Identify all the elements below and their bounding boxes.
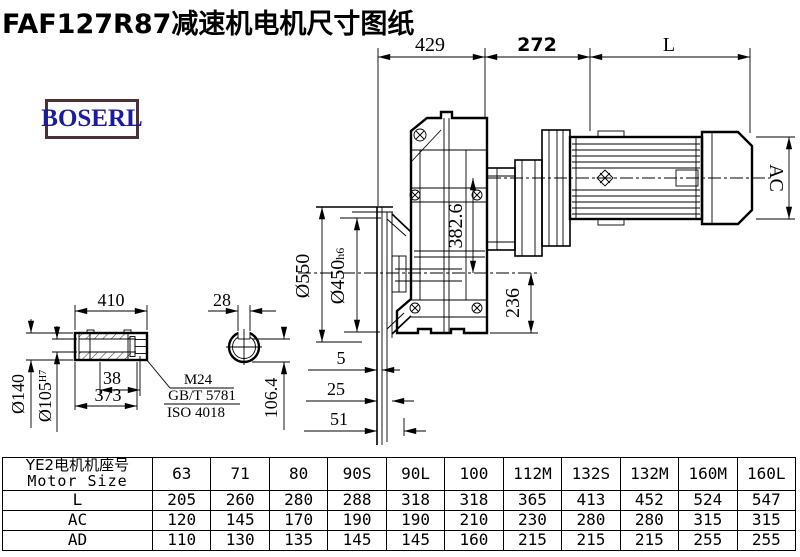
table-corner-cell: YE2电机机座号 Motor Size bbox=[3, 458, 153, 491]
drawing-sheet: FAF127R87减速机电机尺寸图纸 BOSERL 429 272 L bbox=[0, 0, 800, 557]
size-col: 71 bbox=[211, 458, 269, 491]
dim-dia450h6: Ø450h6 bbox=[327, 248, 349, 304]
bolt-icon bbox=[472, 303, 482, 313]
cell: 170 bbox=[269, 510, 327, 530]
dim-AC: AC bbox=[765, 164, 787, 192]
bolt-icon bbox=[414, 129, 426, 141]
bolt-icon bbox=[410, 303, 420, 313]
cell: 210 bbox=[445, 510, 503, 530]
cell: 288 bbox=[328, 490, 386, 510]
size-col: 63 bbox=[153, 458, 211, 491]
size-col: 132S bbox=[562, 458, 620, 491]
cell: 260 bbox=[211, 490, 269, 510]
bolt-icon bbox=[472, 190, 482, 200]
note-m24: M24 bbox=[184, 372, 213, 388]
cell: 190 bbox=[328, 510, 386, 530]
table-row-AC: AC 120 145 170 190 190 210 230 280 280 3… bbox=[3, 510, 796, 530]
dim-dia140: Ø140 bbox=[8, 374, 28, 414]
size-col: 90L bbox=[386, 458, 444, 491]
cell: 215 bbox=[562, 530, 620, 550]
row-label: L bbox=[3, 490, 153, 510]
size-col: 80 bbox=[269, 458, 327, 491]
hollow-shaft-detail: 410 38 373 Ø140 Ø105H7 M24 bbox=[8, 290, 240, 432]
cell: 215 bbox=[620, 530, 678, 550]
dim-382-6: 382.6 bbox=[445, 204, 467, 249]
note-gbt5781: GB/T 5781 bbox=[168, 388, 236, 404]
cell: 190 bbox=[386, 510, 444, 530]
cell: 315 bbox=[737, 510, 795, 530]
cell: 413 bbox=[562, 490, 620, 510]
dim-410: 410 bbox=[98, 290, 125, 310]
cell: 280 bbox=[620, 510, 678, 530]
size-col: 112M bbox=[503, 458, 561, 491]
size-col: 160M bbox=[679, 458, 737, 491]
dim-236: 236 bbox=[502, 288, 524, 318]
dim-272: 272 bbox=[517, 34, 557, 56]
dim-106-4: 106.4 bbox=[261, 378, 281, 419]
dim-5: 5 bbox=[337, 348, 346, 368]
table-row-L: L 205 260 280 288 318 318 365 413 452 52… bbox=[3, 490, 796, 510]
motor-size-label-en: Motor Size bbox=[3, 474, 152, 490]
cell: 280 bbox=[562, 510, 620, 530]
dim-25: 25 bbox=[327, 379, 345, 399]
cell: 160 bbox=[445, 530, 503, 550]
size-col: 100 bbox=[445, 458, 503, 491]
cell: 135 bbox=[269, 530, 327, 550]
cell: 547 bbox=[737, 490, 795, 510]
dim-51: 51 bbox=[330, 409, 348, 429]
cell: 255 bbox=[679, 530, 737, 550]
table-row-AD: AD 110 130 135 145 145 160 215 215 215 2… bbox=[3, 530, 796, 550]
cell: 215 bbox=[503, 530, 561, 550]
centerlines bbox=[298, 178, 770, 273]
cell: 110 bbox=[153, 530, 211, 550]
cell: 145 bbox=[211, 510, 269, 530]
note-iso4018: ISO 4018 bbox=[167, 405, 225, 421]
cell: 280 bbox=[269, 490, 327, 510]
dim-dia550: Ø550 bbox=[292, 254, 314, 298]
dim-429: 429 bbox=[415, 34, 445, 56]
size-col: 90S bbox=[328, 458, 386, 491]
cell: 130 bbox=[211, 530, 269, 550]
cell: 452 bbox=[620, 490, 678, 510]
cell: 120 bbox=[153, 510, 211, 530]
cell: 255 bbox=[737, 530, 795, 550]
size-col: 160L bbox=[737, 458, 795, 491]
row-label: AD bbox=[3, 530, 153, 550]
cell: 205 bbox=[153, 490, 211, 510]
motor-size-table: YE2电机机座号 Motor Size 63 71 80 90S 90L 100… bbox=[2, 457, 796, 551]
dim-373: 373 bbox=[95, 385, 122, 405]
cell: 365 bbox=[503, 490, 561, 510]
size-col: 132M bbox=[620, 458, 678, 491]
cell: 145 bbox=[386, 530, 444, 550]
dim-dia105: Ø105H7 bbox=[35, 370, 55, 422]
top-dimension-chain: 429 272 L bbox=[378, 34, 750, 206]
dim-L: L bbox=[663, 34, 675, 56]
dim-28: 28 bbox=[213, 290, 231, 310]
cell: 318 bbox=[386, 490, 444, 510]
row-label: AC bbox=[3, 510, 153, 530]
cell: 318 bbox=[445, 490, 503, 510]
main-view-dimensions: Ø550 Ø450h6 382.6 236 AC 5 25 bbox=[292, 137, 795, 436]
table-header-row: YE2电机机座号 Motor Size 63 71 80 90S 90L 100… bbox=[3, 458, 796, 491]
cell: 145 bbox=[328, 530, 386, 550]
cell: 524 bbox=[679, 490, 737, 510]
cell: 315 bbox=[679, 510, 737, 530]
motor-adapter bbox=[487, 130, 570, 256]
cell: 230 bbox=[503, 510, 561, 530]
